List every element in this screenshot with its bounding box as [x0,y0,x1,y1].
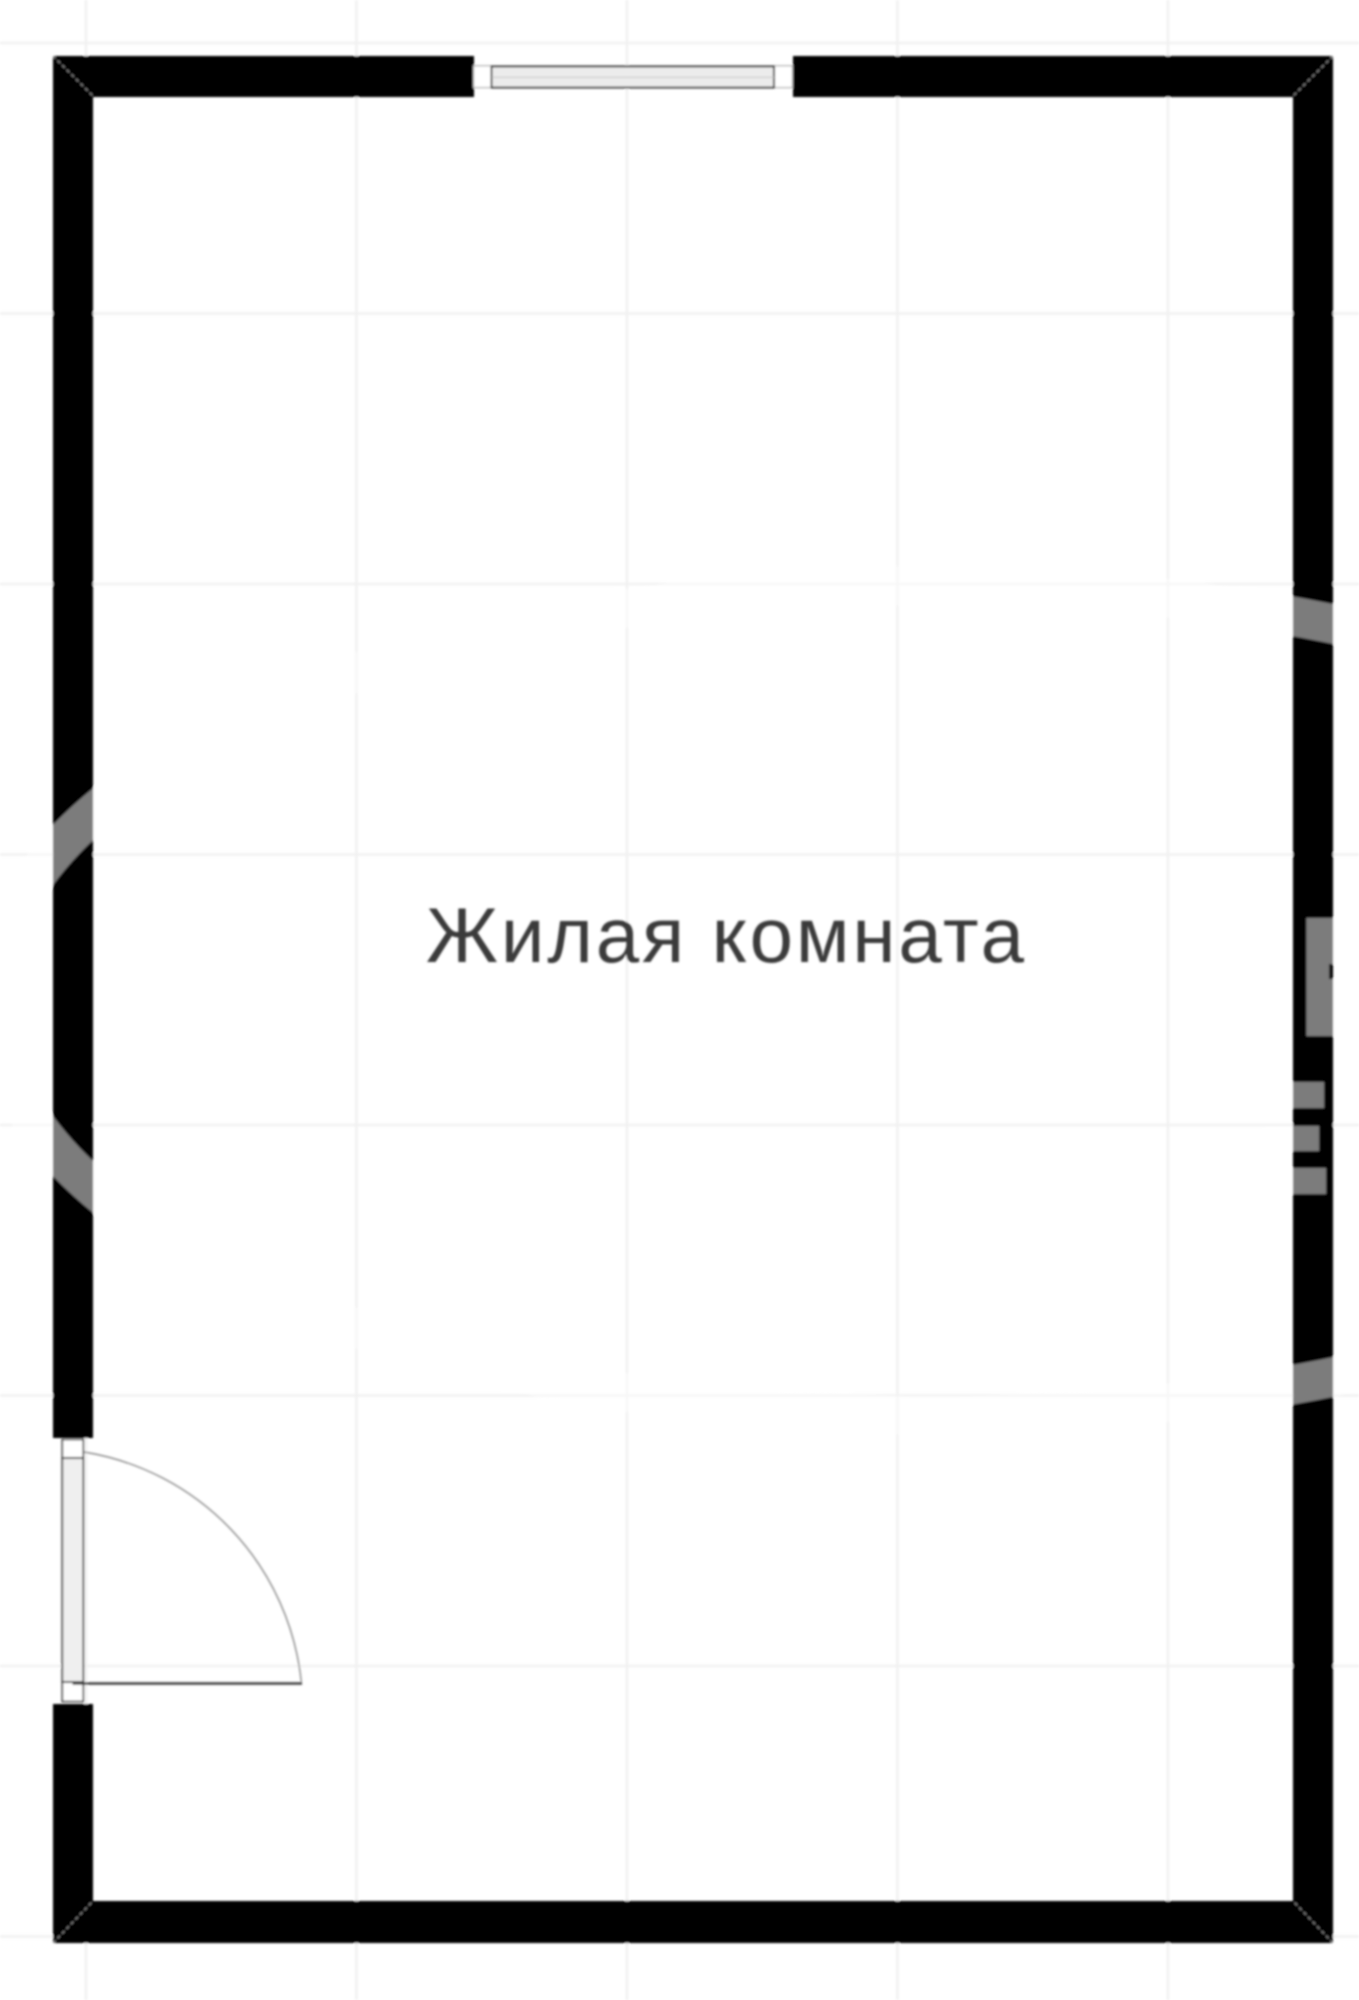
svg-text:Жилая комната: Жилая комната [426,891,1025,979]
